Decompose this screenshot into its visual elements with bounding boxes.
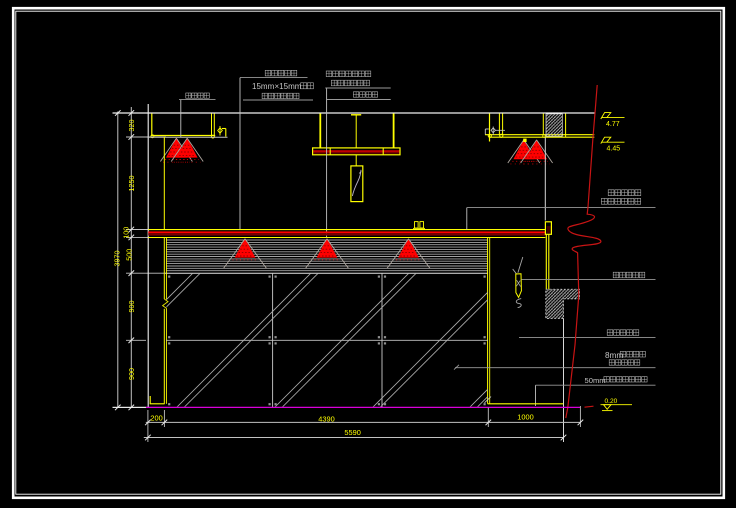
svg-text:50mm: 50mm bbox=[585, 376, 606, 385]
svg-text:900: 900 bbox=[127, 368, 136, 380]
svg-text:5590: 5590 bbox=[344, 428, 360, 437]
svg-text:900: 900 bbox=[127, 301, 136, 313]
svg-text:1000: 1000 bbox=[517, 413, 533, 422]
svg-text:×15mm: ×15mm bbox=[275, 82, 302, 91]
svg-text:0.20: 0.20 bbox=[605, 398, 618, 405]
svg-text:4.77: 4.77 bbox=[606, 121, 620, 128]
svg-text:200: 200 bbox=[150, 414, 162, 423]
svg-text:320: 320 bbox=[127, 120, 136, 132]
svg-text:500: 500 bbox=[125, 249, 134, 261]
svg-text:3970: 3970 bbox=[112, 251, 121, 267]
svg-text:4.45: 4.45 bbox=[607, 145, 621, 152]
svg-text:1250: 1250 bbox=[127, 176, 136, 192]
svg-text:15mm: 15mm bbox=[252, 82, 275, 91]
svg-text:8mm: 8mm bbox=[605, 351, 623, 360]
svg-text:4390: 4390 bbox=[318, 415, 334, 424]
svg-text:100: 100 bbox=[122, 227, 131, 239]
